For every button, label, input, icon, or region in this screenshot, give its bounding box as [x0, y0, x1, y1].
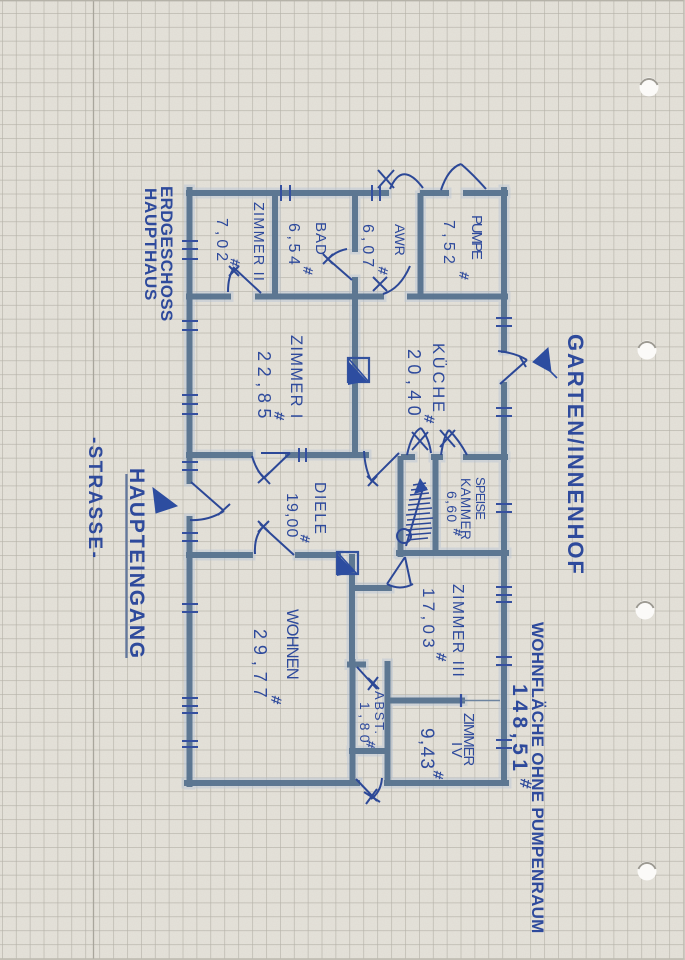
svg-text:AWR: AWR: [392, 224, 408, 256]
svg-text:GARTEN/INNENHOF: GARTEN/INNENHOF: [563, 334, 588, 576]
svg-text:17,03: 17,03: [419, 588, 438, 652]
svg-text:HAUPTEINGANG: HAUPTEINGANG: [125, 468, 148, 660]
svg-text:ZIMMER II: ZIMMER II: [250, 202, 266, 282]
svg-text:-STRASSE-: -STRASSE-: [84, 437, 105, 560]
svg-text:ABST.: ABST.: [372, 691, 387, 736]
svg-text:WOHNFLÄCHE OHNE PUMPENRAUM: WOHNFLÄCHE OHNE PUMPENRAUM: [528, 622, 547, 934]
svg-text:19,00: 19,00: [283, 493, 300, 539]
svg-text:29,77: 29,77: [250, 629, 270, 704]
svg-text:DIELE: DIELE: [311, 482, 328, 536]
svg-text:7,02: 7,02: [213, 218, 230, 265]
svg-text:6,60: 6,60: [444, 491, 460, 523]
svg-text:ZIMMER I: ZIMMER I: [287, 335, 305, 420]
svg-text:6,54: 6,54: [285, 223, 302, 269]
svg-text:148,51: 148,51: [508, 684, 531, 776]
svg-text:KÜCHE: KÜCHE: [429, 343, 447, 415]
svg-text:9,43: 9,43: [416, 728, 437, 770]
svg-text:IV: IV: [448, 742, 465, 759]
svg-text:ZIMMER III: ZIMMER III: [449, 584, 466, 678]
svg-text:HAUPTHAUS: HAUPTHAUS: [141, 188, 160, 301]
svg-text:SPEISE: SPEISE: [473, 477, 488, 520]
svg-text:6,07: 6,07: [359, 224, 376, 271]
svg-text:BAD: BAD: [312, 222, 329, 256]
svg-text:20,40: 20,40: [404, 349, 424, 421]
svg-text:PUMPE: PUMPE: [468, 215, 485, 260]
svg-text:7,52: 7,52: [440, 220, 457, 268]
svg-text:WOHNEN: WOHNEN: [283, 609, 301, 679]
